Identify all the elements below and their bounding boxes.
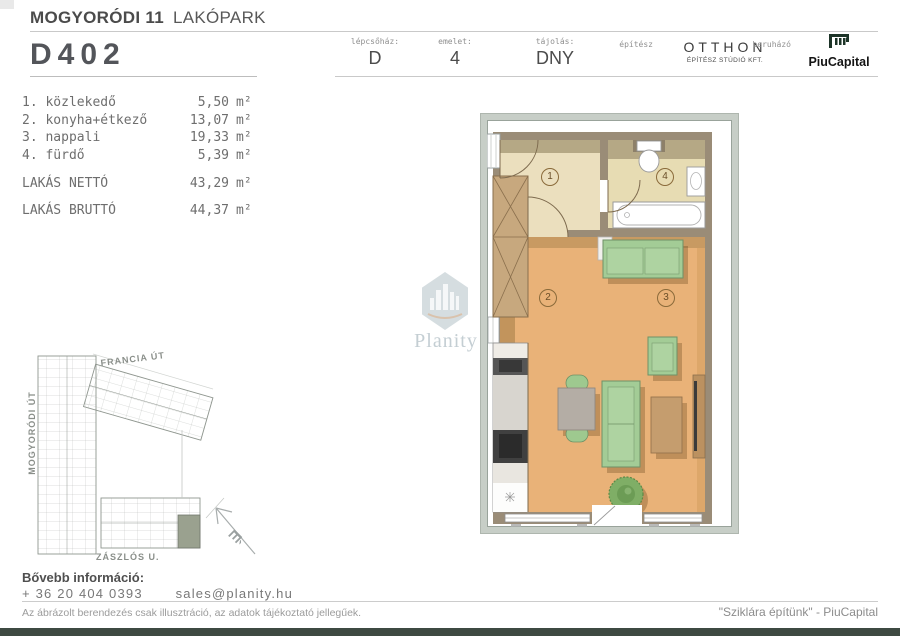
room-area: 13,07 [177,112,229,130]
stairwell-value: D [335,48,415,69]
street-label-francia: FRANCIA ÚT [100,349,166,368]
room-name: nappali [45,130,100,145]
bottom-accent-bar [0,628,900,636]
room-number-1: 1 [541,168,559,186]
room-number-4: 4 [656,168,674,186]
net-total-label: LAKÁS NETTÓ [22,175,177,192]
footer-divider [22,601,878,602]
floorplan-graphic [487,120,732,527]
kitchen-counter [493,343,528,512]
floorplan-drawing: 1 2 3 4 [481,114,738,533]
room-number-3: 3 [657,289,675,307]
watermark-skyline-icon [422,272,468,330]
room-num: 1. [22,95,45,110]
footer-contact: + 36 20 404 0393 sales@planity.hu [22,586,293,601]
room-row: 3. nappali 19,33 m² [22,129,258,147]
project-name: MOGYORÓDI 11 [30,8,164,27]
room-list: 1. közlekedő 5,50 m² 2. konyha+étkező 13… [22,94,258,219]
gross-total-label: LAKÁS BRUTTÓ [22,202,177,219]
architect-label: építész [587,40,653,49]
gross-total-area: 44,37 [177,202,229,219]
area-unit: m² [236,129,258,147]
footer-disclaimer: Az ábrázolt berendezés csak illusztráció… [22,607,361,619]
building-outline [38,354,213,554]
room-name: közlekedő [45,95,115,110]
area-unit: m² [236,112,258,130]
room-row: 2. konyha+étkező 13,07 m² [22,112,258,130]
area-unit: m² [236,147,258,165]
area-unit: m² [236,202,258,219]
room-row: 1. közlekedő 5,50 m² [22,94,258,112]
footer-info-label: Bővebb információ: [22,570,144,585]
room-name: fürdő [45,148,84,163]
developer-label: beruházó [727,40,791,49]
watermark-logo [422,272,468,330]
page-title: MOGYORÓDI 11 LAKÓPARK [30,8,266,28]
net-total-area: 43,29 [177,175,229,192]
street-label-mogyorodi: MOGYORÓDI ÚT [26,391,37,475]
unit-info-table: lépcsőház: D emelet: 4 tájolás: DNY épít… [335,32,878,77]
room-num: 4. [22,148,45,163]
room-row: 4. fürdő 5,39 m² [22,147,258,165]
highlighted-unit [178,515,200,548]
phone-number: + 36 20 404 0393 [22,586,143,601]
gross-total-row: LAKÁS BRUTTÓ 44,37 m² [22,202,258,219]
watermark-brand: Planity [408,330,484,353]
siteplan-map: FRANCIA ÚT MOGYORÓDI ÚT ZÁSZLÓS U. É [8,342,273,570]
email-address: sales@planity.hu [176,586,293,601]
developer-logo: PiuCapital [800,34,878,69]
room-name: konyha+étkező [45,113,147,128]
apartment-id-underline [30,76,257,77]
net-total-row: LAKÁS NETTÓ 43,29 m² [22,175,258,192]
project-name-suffix: LAKÓPARK [173,8,266,27]
room-num: 2. [22,113,45,128]
orientation-value: DNY [495,48,615,69]
room-num: 3. [22,130,45,145]
room-area: 5,39 [177,147,229,165]
area-unit: m² [236,94,258,112]
plan-sheet: MOGYORÓDI 11 LAKÓPARK D402 lépcsőház: D … [0,0,900,636]
floor-value: 4 [415,48,495,69]
street-label-zaszlos: ZÁSZLÓS U. [96,551,160,562]
north-arrow-icon [206,498,255,554]
room-area: 5,50 [177,94,229,112]
piucapital-column-icon [826,34,852,49]
architect-subtitle: ÉPÍTÉSZ STÚDIÓ KFT. [660,57,790,64]
wardrobe [493,176,528,317]
info-stairwell: lépcsőház: D [335,32,415,76]
compass-north-letter: É [225,526,246,547]
stairwell-label: lépcsőház: [335,37,415,46]
room-number-2: 2 [539,289,557,307]
room-area: 19,33 [177,129,229,147]
floor-label: emelet: [415,37,495,46]
apartment-id: D402 [30,38,126,72]
scan-artifact [0,0,14,9]
info-floor: emelet: 4 [415,32,495,76]
footer-slogan: "Sziklára építünk" - PiuCapital [719,605,878,619]
developer-name: PiuCapital [800,55,878,69]
info-orientation: tájolás: DNY [495,32,615,76]
area-unit: m² [236,175,258,192]
